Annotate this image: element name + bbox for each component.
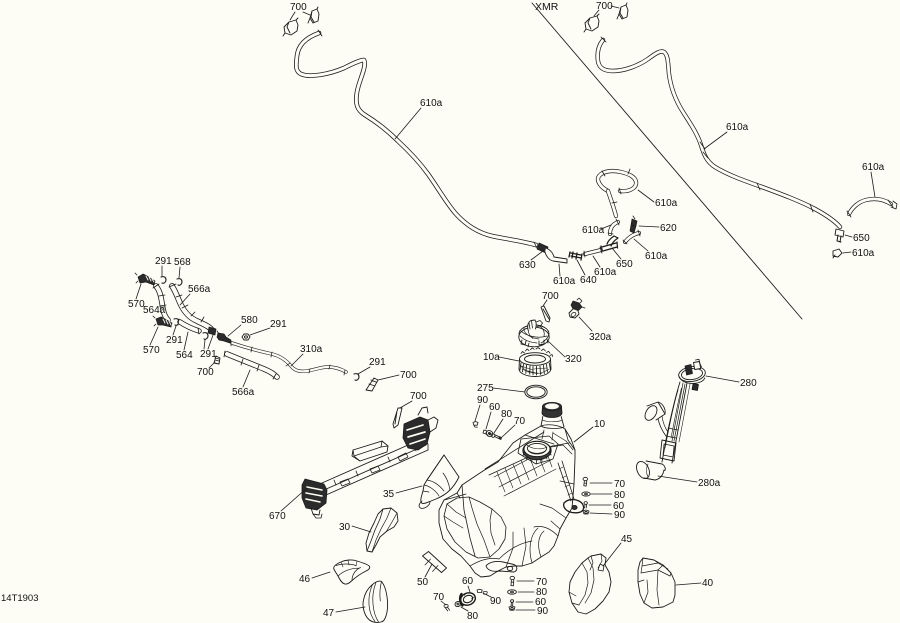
svg-text:291: 291 (155, 256, 172, 267)
svg-text:10a: 10a (483, 352, 500, 363)
svg-text:80: 80 (501, 409, 513, 420)
svg-text:30: 30 (339, 522, 351, 533)
svg-text:275: 275 (477, 383, 494, 394)
svg-text:580: 580 (241, 315, 258, 326)
svg-text:570: 570 (143, 345, 160, 356)
svg-text:320a: 320a (589, 332, 612, 343)
svg-text:70: 70 (614, 479, 626, 490)
svg-text:564: 564 (176, 350, 193, 361)
svg-text:610a: 610a (852, 248, 875, 259)
svg-text:568: 568 (174, 257, 191, 268)
svg-text:700: 700 (197, 367, 214, 378)
svg-text:40: 40 (702, 578, 714, 589)
svg-text:610a: 610a (645, 251, 668, 262)
svg-text:50: 50 (417, 577, 429, 588)
svg-text:670: 670 (269, 511, 286, 522)
svg-text:700: 700 (290, 2, 307, 13)
svg-text:45: 45 (621, 534, 633, 545)
svg-text:60: 60 (462, 576, 474, 587)
svg-text:566a: 566a (232, 387, 255, 398)
svg-text:70: 70 (433, 592, 445, 603)
svg-text:280: 280 (740, 378, 757, 389)
svg-text:47: 47 (323, 608, 335, 619)
svg-text:35: 35 (383, 489, 395, 500)
svg-text:610a: 610a (594, 267, 617, 278)
svg-text:14T1903: 14T1903 (1, 593, 39, 604)
svg-text:80: 80 (467, 611, 479, 622)
svg-text:10: 10 (594, 419, 606, 430)
svg-text:60: 60 (489, 402, 501, 413)
svg-text:650: 650 (853, 233, 870, 244)
svg-text:46: 46 (299, 574, 311, 585)
svg-text:90: 90 (614, 510, 626, 521)
svg-text:280a: 280a (698, 478, 721, 489)
svg-text:700: 700 (410, 391, 427, 402)
svg-text:650: 650 (616, 259, 633, 270)
svg-text:700: 700 (400, 370, 417, 381)
svg-text:90: 90 (537, 606, 549, 617)
svg-text:90: 90 (490, 596, 502, 607)
svg-text:291: 291 (270, 319, 287, 330)
svg-text:630: 630 (519, 260, 536, 271)
svg-text:610a: 610a (726, 122, 749, 133)
svg-text:XMR: XMR (535, 1, 559, 13)
svg-text:291: 291 (369, 357, 386, 368)
svg-text:620: 620 (660, 223, 677, 234)
svg-text:80: 80 (614, 490, 626, 501)
svg-text:291: 291 (166, 335, 183, 346)
svg-text:90: 90 (477, 395, 489, 406)
svg-text:610a: 610a (420, 98, 443, 109)
svg-text:610a: 610a (862, 162, 885, 173)
svg-text:700: 700 (542, 291, 559, 302)
svg-text:70: 70 (514, 416, 526, 427)
svg-text:320: 320 (565, 354, 582, 365)
svg-text:310a: 310a (300, 344, 323, 355)
svg-text:610a: 610a (655, 198, 678, 209)
svg-text:291: 291 (200, 349, 217, 360)
svg-text:566a: 566a (188, 284, 211, 295)
svg-text:610a: 610a (582, 225, 605, 236)
svg-text:610a: 610a (553, 276, 576, 287)
